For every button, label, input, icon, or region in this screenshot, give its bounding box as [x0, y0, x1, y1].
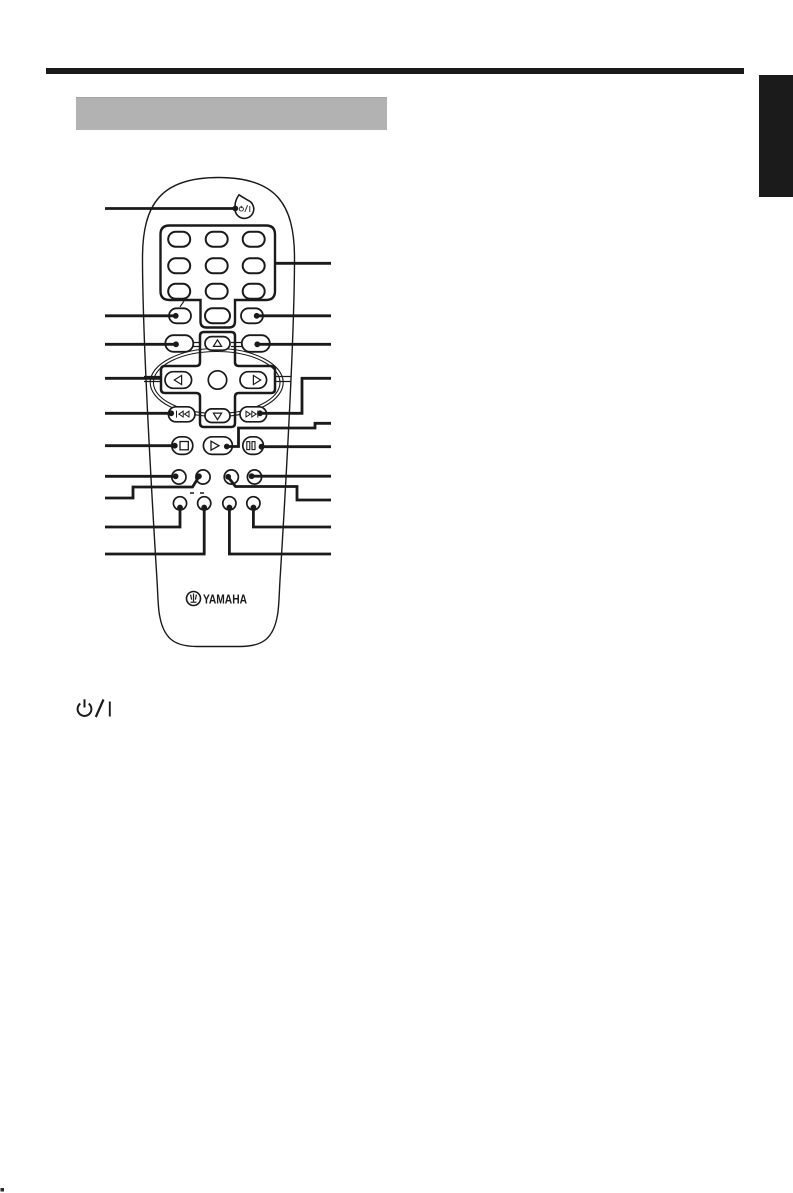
pause-button — [243, 437, 265, 455]
corner-mark — [1, 1188, 5, 1192]
stop-button — [172, 437, 193, 455]
power-standby-icon — [239, 205, 250, 212]
callout-line-round1-c — [229, 478, 332, 501]
yamaha-tuning-fork-icon — [187, 592, 201, 606]
number-button — [243, 232, 265, 247]
callout-line-skip-forward — [260, 378, 331, 413]
brand-wordmark: YAMAHA — [203, 593, 247, 607]
number-button — [168, 284, 190, 299]
number-button — [206, 258, 228, 273]
round-button-row2 — [173, 497, 260, 510]
power-button — [232, 195, 253, 219]
cursor-enter-button — [208, 371, 226, 389]
number-button — [168, 258, 190, 273]
callout-line-round2-c — [229, 508, 331, 555]
brand-logo: YAMAHA — [187, 592, 248, 607]
cursor-left-button — [165, 372, 192, 389]
skip-back-button — [168, 407, 195, 422]
cursor-up-button — [205, 337, 230, 351]
slash-mark — [180, 301, 184, 307]
cursor-right-button — [240, 372, 267, 389]
callout-line-round2-a — [105, 508, 180, 528]
number-button — [168, 232, 190, 247]
number-button — [206, 232, 228, 247]
callout-line-round2-d — [253, 508, 331, 528]
legend-power-standby-icon — [78, 699, 110, 717]
number-button — [243, 258, 265, 273]
remote-control-diagram: YAMAHA — [0, 0, 793, 1193]
number-button — [206, 284, 228, 299]
cursor-down-button — [205, 409, 230, 423]
number-button — [243, 284, 265, 299]
round-button-row1 — [172, 470, 262, 484]
number-button-zero — [205, 308, 230, 323]
